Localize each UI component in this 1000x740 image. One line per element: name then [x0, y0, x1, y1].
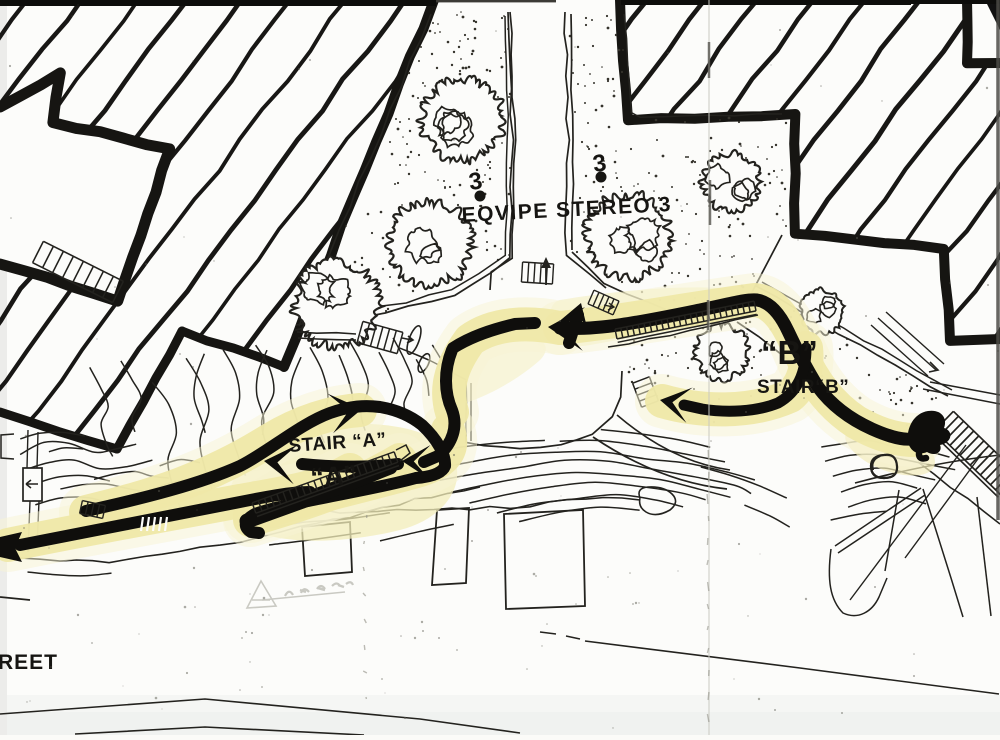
svg-text:STAIR“B”: STAIR“B”	[757, 377, 849, 398]
svg-text:“A”: “A”	[309, 460, 357, 493]
svg-text:“B”: “B”	[761, 334, 818, 371]
svg-text:REET: REET	[0, 651, 58, 674]
